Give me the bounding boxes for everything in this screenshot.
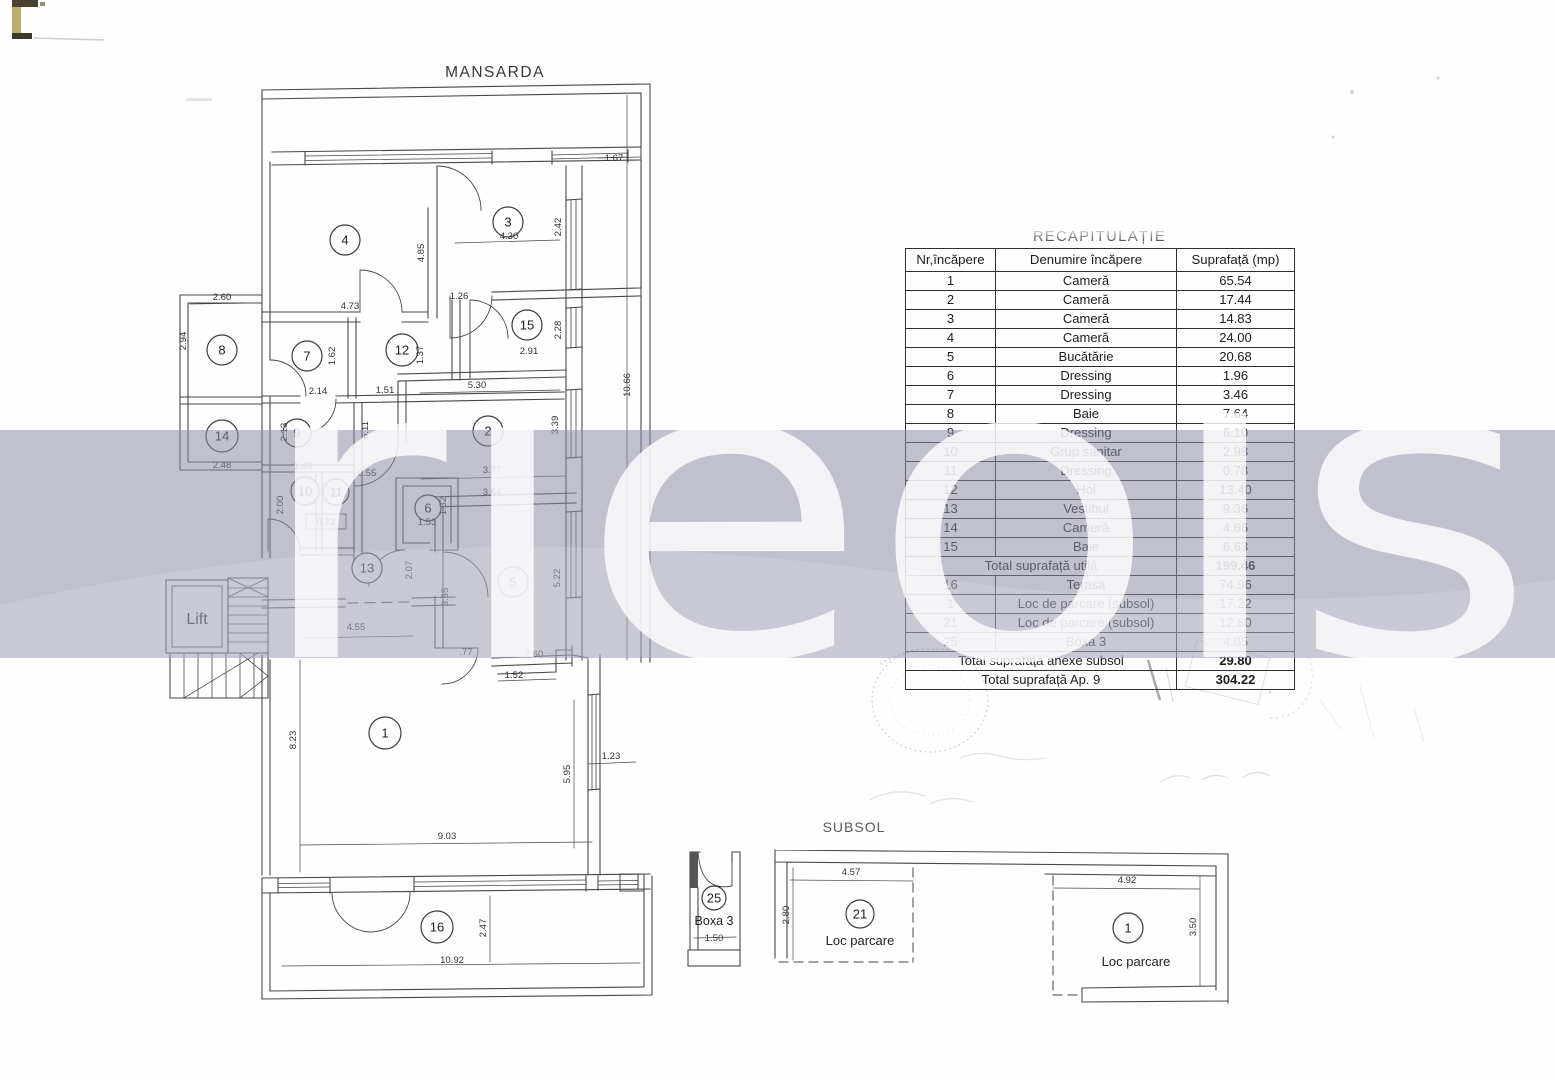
table-total-row: Total suprafață Ap. 9304.22: [906, 671, 1295, 690]
dimension-label: 2.14: [309, 386, 328, 397]
room-number: 16: [430, 920, 444, 935]
table-row: 5Bucătărie20.68: [906, 348, 1295, 367]
dimension-label: 3.50: [1188, 918, 1199, 937]
dimension-label: 4.92: [1118, 875, 1137, 886]
dimension-label: 1.26: [450, 291, 469, 302]
dimension-label: 2.80: [781, 906, 792, 925]
table-row: 7Dressing3.46: [906, 386, 1295, 405]
room-number: 4: [341, 233, 348, 248]
plan-label: Boxa 3: [695, 914, 734, 928]
dimension-label: 2.28: [553, 321, 564, 340]
dimension-label: 4.85: [416, 244, 427, 263]
dimension-label: 4.73: [341, 301, 360, 312]
dimension-label: 2.60: [213, 292, 232, 303]
dimension-label: 1.50: [705, 933, 724, 944]
dimension-label: 1.67: [605, 153, 624, 164]
plan-label: SUBSOL: [823, 819, 886, 835]
room-number-marker: 16: [421, 911, 453, 943]
table-row: 2Cameră17.44: [906, 291, 1295, 310]
table-title: RECAPITULAȚIE: [905, 229, 1294, 245]
dimension-label: 9.03: [438, 831, 457, 842]
dimension-label: 5.95: [562, 765, 573, 784]
dimension-label: 10.92: [440, 955, 464, 966]
room-number: 12: [395, 343, 409, 358]
dimension-label: 1.62: [327, 347, 338, 366]
scanned-floorplan-page: 4315871214921011613511625211 1.674.854.3…: [0, 0, 1555, 1080]
dimension-label: 1.23: [602, 751, 621, 762]
dimension-label: 2.91: [520, 346, 539, 357]
room-number-marker: 21: [846, 900, 874, 928]
scan-artifact: [12, 0, 212, 101]
dimension-label: 8.23: [288, 731, 299, 750]
dimension-label: 2.94: [178, 332, 189, 351]
table-row: 6Dressing1.96: [906, 367, 1295, 386]
watermark-band: [0, 430, 1555, 658]
room-number: 15: [520, 318, 534, 333]
table-header-row: Nr,încăpere Denumire încăpere Suprafață …: [906, 249, 1295, 272]
subsol-linework: [688, 850, 1228, 1003]
room-number-marker: 25: [702, 886, 726, 910]
table-row: 8Baie7.64: [906, 405, 1295, 424]
dimension-label: 2.47: [478, 919, 489, 938]
room-number: 3: [504, 215, 511, 230]
room-number-marker: 7: [292, 341, 322, 371]
room-number: 1: [1124, 921, 1131, 936]
room-number: 8: [218, 343, 225, 358]
room-number-marker: 15: [512, 310, 542, 340]
col-header-nr: Nr,încăpere: [906, 249, 996, 272]
dimension-label: 1.52: [505, 670, 524, 681]
dimension-label: 1.37: [415, 346, 426, 365]
dimension-label: 10.66: [622, 373, 633, 397]
room-number: 1: [381, 726, 388, 741]
plan-label: MANSARDA: [445, 64, 545, 81]
plan-label: Loc parcare: [1102, 954, 1171, 969]
room-number-marker: 1: [369, 717, 401, 749]
plan-label: Loc parcare: [826, 933, 895, 948]
room-number-marker: 12: [386, 334, 418, 366]
table-row: 3Cameră14.83: [906, 310, 1295, 329]
col-header-name: Denumire încăpere: [996, 249, 1177, 272]
room-number-marker: 4: [330, 225, 360, 255]
room-number: 21: [853, 907, 867, 922]
dimension-label: 4.30: [500, 231, 519, 242]
col-header-area: Suprafață (mp): [1177, 249, 1295, 272]
dimension-label: 4.57: [842, 867, 861, 878]
table-row: 4Cameră24.00: [906, 329, 1295, 348]
room-number-marker: 1: [1113, 913, 1143, 943]
watermark-swoosh: [0, 430, 1555, 658]
table-row: 1Cameră65.54: [906, 272, 1295, 291]
room-number: 7: [303, 349, 310, 364]
dimension-label: 1.51: [376, 385, 395, 396]
dimension-label: 5.30: [468, 380, 487, 391]
room-number: 25: [707, 891, 721, 906]
dimension-label: 2.42: [553, 218, 564, 237]
room-number-marker: 8: [207, 335, 237, 365]
